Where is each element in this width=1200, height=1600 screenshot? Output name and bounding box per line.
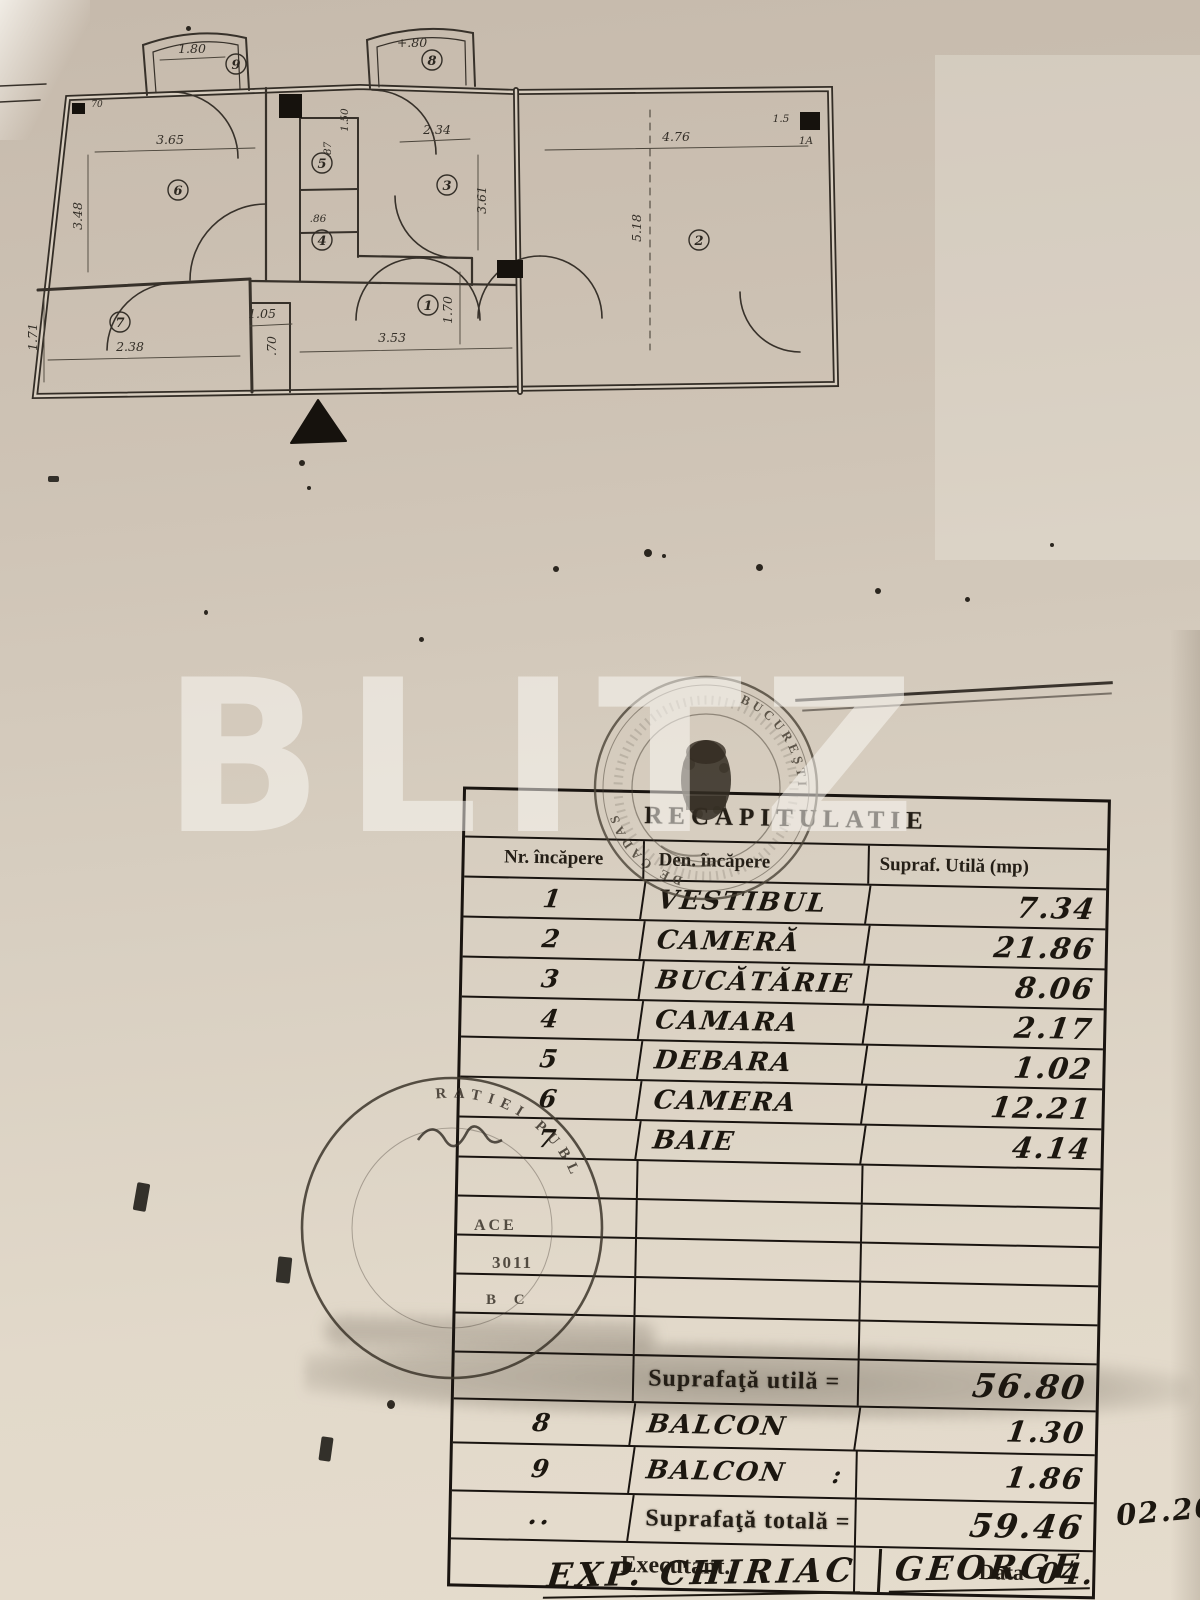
signature-surname: GEORGE bbox=[888, 1546, 1093, 1593]
cell-val: 8.06 bbox=[864, 966, 1106, 1009]
cell-den: CAMERĂ bbox=[640, 921, 870, 963]
dim-room2-height: 5.18 bbox=[629, 214, 644, 242]
dim-hall-length: 3.53 bbox=[378, 330, 406, 345]
cell-den: DEBARA bbox=[638, 1041, 868, 1083]
subtotal-label: Suprafaţă utilă = bbox=[634, 1356, 860, 1406]
dim-kitchen-height: 3.61 bbox=[474, 186, 489, 214]
adjacent-drawing-stubs bbox=[0, 84, 46, 102]
room-label-7: 7 bbox=[115, 316, 124, 331]
room-label-6: 6 bbox=[173, 184, 182, 199]
stamp-left-signature-squiggle bbox=[418, 1126, 502, 1146]
scanned-document-page: 3.65 3.48 2.38 1.71 1.05 .70 3.53 1.70 2… bbox=[0, 0, 1200, 1600]
cell-val: 7.34 bbox=[866, 886, 1108, 929]
dim-hall-width: 1.05 bbox=[248, 306, 276, 321]
stamp-left-line1: ACE bbox=[474, 1217, 517, 1234]
stamp-left-line3: B C bbox=[486, 1292, 532, 1308]
cell-den-mark: : bbox=[830, 1460, 845, 1489]
dim-room2-width: 4.76 bbox=[661, 129, 690, 144]
cell-val: 12.21 bbox=[862, 1086, 1104, 1129]
stamp-left-arc-text: RATIEI PUBL bbox=[435, 1085, 585, 1182]
cell-val: 4.14 bbox=[861, 1126, 1103, 1169]
scan-speck bbox=[307, 486, 311, 490]
dimension-labels: 3.65 3.48 2.38 1.71 1.05 .70 3.53 1.70 2… bbox=[25, 35, 814, 356]
corner-note-b: 1A bbox=[799, 135, 814, 147]
dim-balcony9-width: 1.80 bbox=[178, 41, 206, 56]
scan-smear bbox=[133, 1182, 151, 1212]
scan-speck bbox=[186, 26, 191, 31]
cell-val: 1.02 bbox=[863, 1046, 1105, 1089]
room-label-9: 9 bbox=[231, 58, 240, 73]
room-label-3: 3 bbox=[442, 179, 451, 194]
scan-speck bbox=[204, 610, 208, 615]
cell-den: BUCĂTĂRIE bbox=[640, 961, 870, 1003]
paper-light-band bbox=[935, 55, 1200, 560]
scan-speck bbox=[299, 460, 305, 466]
total-label: Suprafaţă totală = bbox=[631, 1495, 857, 1546]
scan-smear bbox=[276, 1256, 293, 1283]
cell-nr: 4 bbox=[459, 998, 644, 1040]
total-nr-mark: .. bbox=[448, 1491, 635, 1540]
room-label-1: 1 bbox=[423, 299, 432, 314]
cell-nr: 8 bbox=[450, 1399, 636, 1445]
dimension-lines bbox=[44, 57, 808, 382]
room-label-4: 4 bbox=[317, 234, 326, 249]
cell-nr: 9 bbox=[449, 1443, 636, 1492]
dim-kitchen-width: 2.34 bbox=[422, 122, 451, 137]
room-label-2: 2 bbox=[693, 234, 703, 249]
dim-shaft-height: 1.50 bbox=[339, 108, 351, 132]
page-edge-shade bbox=[1170, 630, 1200, 1600]
scan-speck bbox=[875, 588, 881, 594]
dim-camara: .86 bbox=[310, 213, 327, 225]
dim-balcony8-width: +.80 bbox=[397, 35, 427, 50]
scan-smear bbox=[48, 476, 59, 482]
cell-val: 21.86 bbox=[865, 926, 1107, 969]
floor-plan: 3.65 3.48 2.38 1.71 1.05 .70 3.53 1.70 2… bbox=[0, 0, 880, 470]
north-arrow-icon bbox=[291, 400, 346, 443]
cell-den: BALCON : bbox=[632, 1447, 858, 1498]
scan-speck bbox=[553, 566, 559, 572]
cell-val: 1.30 bbox=[855, 1408, 1098, 1455]
cell-den: CAMARA bbox=[639, 1001, 869, 1043]
scan-speck bbox=[1050, 543, 1054, 547]
scan-speck bbox=[644, 549, 652, 557]
wall-note-70: 70 bbox=[91, 100, 103, 110]
total-value: 59.46 bbox=[853, 1500, 1097, 1551]
round-stamp-left: RATIEI PUBL ACE 3011 B C bbox=[412, 1078, 642, 1358]
date-continuation: 02.20 bbox=[1115, 1490, 1200, 1533]
cell-den: BAIE bbox=[636, 1121, 866, 1163]
svg-text:RATIEI PUBL: RATIEI PUBL bbox=[435, 1085, 585, 1182]
signature-name: EXP. CHIRIAC bbox=[543, 1550, 864, 1599]
cell-den: BALCON bbox=[630, 1403, 861, 1449]
cell-nr: 2 bbox=[460, 918, 645, 960]
dim-room6-width: 3.65 bbox=[156, 132, 184, 147]
dim-bath-height: 1.71 bbox=[25, 323, 40, 351]
scan-speck bbox=[662, 554, 666, 558]
signature-divider bbox=[877, 1549, 882, 1593]
scan-smear bbox=[318, 1436, 333, 1461]
stamp-left-line2: 3011 bbox=[492, 1253, 533, 1272]
dim-room6-height: 3.48 bbox=[70, 202, 85, 230]
cell-den-text: BALCON bbox=[644, 1455, 788, 1488]
room-label-8: 8 bbox=[427, 54, 436, 69]
scan-speck bbox=[965, 597, 970, 602]
cell-nr: 3 bbox=[460, 958, 645, 1000]
watermark: BLITZ bbox=[162, 652, 936, 864]
cell-den: CAMERA bbox=[637, 1081, 867, 1123]
dim-hall-height: 1.70 bbox=[440, 296, 455, 324]
cell-val: 2.17 bbox=[864, 1006, 1106, 1049]
dim-hall-small: .70 bbox=[264, 336, 279, 356]
cell-nr: 5 bbox=[458, 1038, 643, 1080]
corner-note-a: 1.5 bbox=[773, 113, 790, 125]
scan-speck bbox=[756, 564, 763, 571]
room-label-5: 5 bbox=[317, 157, 326, 172]
subtotal-value: 56.80 bbox=[856, 1361, 1099, 1411]
dim-bath-width: 2.38 bbox=[115, 339, 144, 354]
cell-val: 1.86 bbox=[854, 1452, 1098, 1503]
